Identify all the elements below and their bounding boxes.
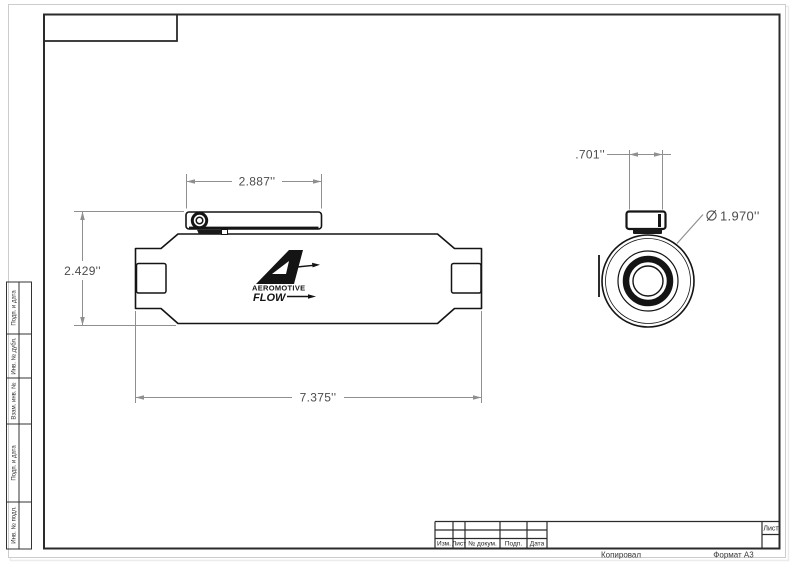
end-view-bracket-base — [633, 229, 662, 234]
bracket-tab — [222, 230, 228, 235]
drawing-canvas: Подп. и дата Инв. № дубл. Взам. инв. № П… — [0, 0, 800, 565]
dim-diameter-value: 1.970'' — [720, 209, 760, 224]
titleblock-col-data: Дата — [530, 541, 545, 548]
footer-format-label: Формат А3 — [713, 551, 754, 560]
left-port-fitting — [137, 264, 167, 294]
dim-overall-height-value: 2.429'' — [64, 264, 101, 278]
titleblock-col-podp: Подп. — [505, 541, 522, 548]
margin-label: Взам. инв. № — [11, 382, 18, 419]
titleblock-col-izm: Изм. — [437, 541, 451, 548]
dim-overall-length-value: 7.375'' — [300, 391, 337, 405]
titleblock-col-docnum: № докум. — [468, 541, 497, 548]
margin-label: Подп. и дата — [12, 290, 18, 326]
right-port-fitting — [452, 264, 482, 294]
titleblock-col-list: Лист — [452, 541, 466, 548]
bolt-center-icon — [196, 217, 203, 224]
filter-body-outline — [136, 234, 482, 324]
margin-label: Инв. № дубл. — [11, 337, 18, 374]
body-outer-circle — [602, 235, 694, 327]
footer-copy-label: Копировал — [601, 551, 641, 560]
sheet-number-label: Лист — [763, 526, 779, 533]
logo-flow-text: FLOW — [253, 292, 287, 304]
margin-label: Инв. № подл. — [11, 506, 18, 544]
dim-port-offset-value: .701'' — [575, 148, 605, 162]
engineering-drawing: Подп. и дата Инв. № дубл. Взам. инв. № П… — [0, 0, 800, 565]
margin-label: Подп. и дата — [12, 445, 18, 481]
dim-bracket-length-value: 2.887'' — [239, 175, 276, 189]
